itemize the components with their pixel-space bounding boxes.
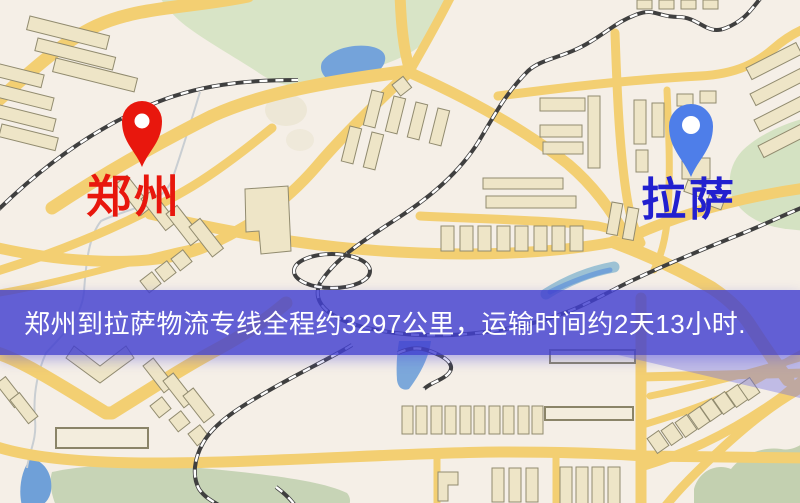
destination-city-label: 拉萨 — [641, 178, 737, 223]
route-info-text: 郑州到拉萨物流专线全程约3297公里，运输时间约2天13小时. — [0, 304, 746, 341]
map-image: 郑州 拉萨 郑州到拉萨物流专线全程约3297公里，运输时间约2天13小时. — [0, 0, 800, 503]
pool — [20, 458, 51, 503]
route-info-banner: 郑州到拉萨物流专线全程约3297公里，运输时间约2天13小时. — [0, 290, 800, 355]
map-canvas — [0, 0, 800, 503]
origin-city-label: 郑州 — [86, 175, 182, 220]
